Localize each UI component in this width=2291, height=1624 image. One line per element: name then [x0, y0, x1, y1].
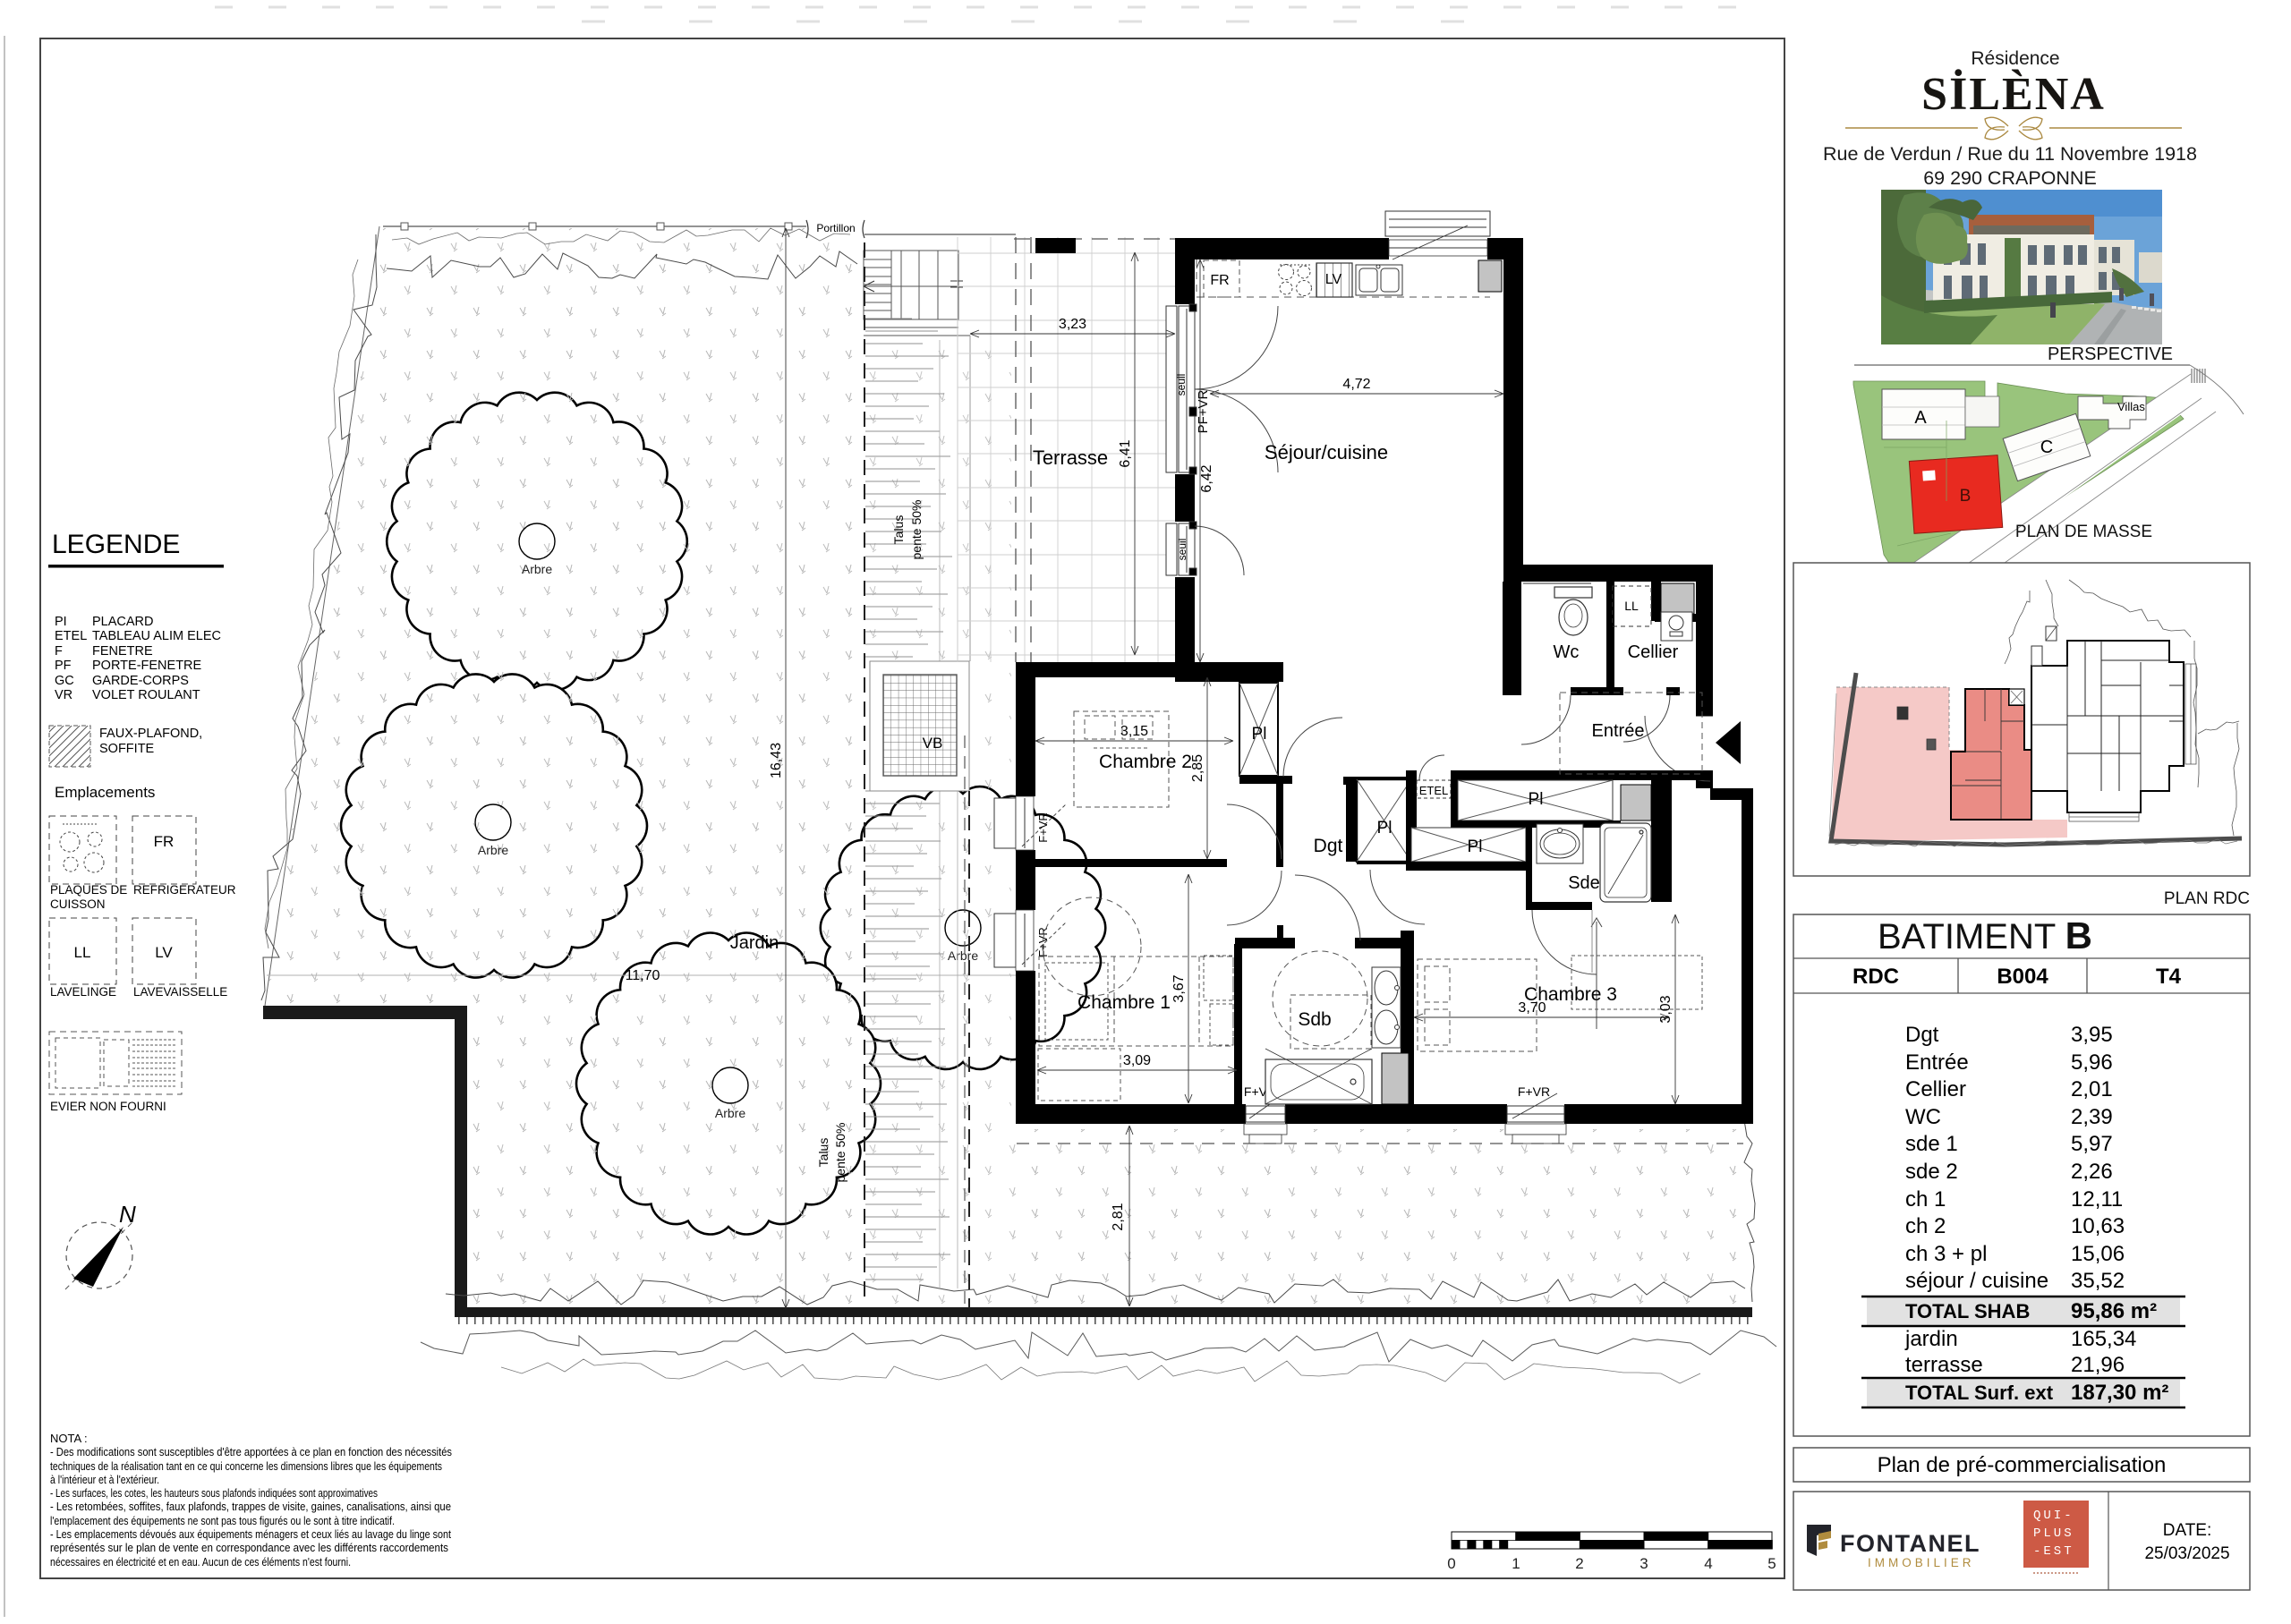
svg-text:3,03: 3,03	[1658, 995, 1674, 1023]
svg-text:3,23: 3,23	[1059, 317, 1086, 332]
svg-text:Chambre 2: Chambre 2	[1099, 752, 1192, 772]
svg-text:2,81: 2,81	[1111, 1203, 1126, 1230]
svg-text:LL: LL	[74, 944, 91, 961]
svg-text:- Les emplacements dévoués aux: - Les emplacements dévoués aux équipemen…	[50, 1527, 451, 1541]
svg-text:FAUX-PLAFOND,: FAUX-PLAFOND,	[99, 727, 202, 741]
svg-text:5,97: 5,97	[2071, 1132, 2113, 1156]
svg-text:Arbre: Arbre	[478, 843, 508, 857]
svg-text:- Des modifications sont susce: - Des modifications sont susceptibles d'…	[50, 1445, 452, 1458]
svg-text:Entrée: Entrée	[1592, 721, 1645, 741]
svg-text:FONTANEL: FONTANEL	[1840, 1530, 1980, 1557]
svg-text:PERSPECTIVE: PERSPECTIVE	[2048, 344, 2173, 364]
svg-text:PLAN DE MASSE: PLAN DE MASSE	[2015, 523, 2152, 541]
svg-text:SİLÈNA: SİLÈNA	[1921, 68, 2106, 120]
svg-text:11,70: 11,70	[626, 968, 660, 983]
svg-text:Pl: Pl	[1252, 725, 1267, 744]
svg-text:3,67: 3,67	[1171, 974, 1187, 1002]
svg-text:TOTAL Surf. ext: TOTAL Surf. ext	[1905, 1382, 2054, 1404]
svg-text:Arbre: Arbre	[948, 948, 978, 963]
svg-text:2,39: 2,39	[2071, 1105, 2113, 1129]
svg-text:Arbre: Arbre	[522, 562, 552, 576]
svg-text:4: 4	[1704, 1555, 1712, 1572]
svg-text:5,96: 5,96	[2071, 1050, 2113, 1075]
svg-text:10,63: 10,63	[2071, 1214, 2125, 1238]
svg-text:nécessaires en électricité et: nécessaires en électricité et en eau. Au…	[50, 1555, 351, 1569]
svg-text:séjour / cuisine: séjour / cuisine	[1905, 1269, 2048, 1293]
svg-text:25/03/2025: 25/03/2025	[2144, 1544, 2229, 1563]
svg-text:Rue de Verdun / Rue du 11 Nove: Rue de Verdun / Rue du 11 Novembre 1918	[1823, 143, 2197, 165]
svg-text:PLUS: PLUS	[2033, 1526, 2074, 1541]
svg-text:Wc: Wc	[1554, 642, 1580, 662]
svg-text:pente 50%: pente 50%	[833, 1123, 847, 1183]
svg-text:seuil: seuil	[1176, 539, 1188, 561]
svg-text:Cellier: Cellier	[1905, 1077, 1966, 1101]
svg-text:Entrée: Entrée	[1905, 1050, 1969, 1075]
svg-text:Sde: Sde	[1568, 873, 1600, 893]
svg-text:PF+VR: PF+VR	[1196, 389, 1211, 433]
svg-text:B: B	[1960, 487, 1972, 506]
svg-text:1: 1	[1512, 1555, 1520, 1572]
svg-text:3: 3	[1639, 1555, 1648, 1572]
svg-text:2,01: 2,01	[2071, 1077, 2113, 1101]
svg-text:Portillon: Portillon	[816, 222, 855, 234]
svg-text:DATE:: DATE:	[2163, 1521, 2212, 1540]
svg-text:15,06: 15,06	[2071, 1242, 2125, 1266]
svg-text:A: A	[1914, 408, 1927, 428]
svg-text:PORTE-FENETRE: PORTE-FENETRE	[92, 659, 202, 673]
svg-text:F+VR: F+VR	[1036, 812, 1050, 843]
svg-text:Talus: Talus	[891, 515, 906, 545]
svg-text:B004: B004	[1997, 965, 2048, 989]
svg-text:Talus: Talus	[816, 1138, 830, 1168]
svg-text:sde 1: sde 1	[1905, 1132, 1958, 1156]
svg-text:l'emplacement des équipements: l'emplacement des équipements ne sont pa…	[50, 1514, 395, 1527]
svg-text:F+VR: F+VR	[1518, 1084, 1550, 1099]
svg-text:6,42: 6,42	[1199, 464, 1214, 492]
svg-text:PLACARD: PLACARD	[92, 615, 154, 629]
svg-text:3,09: 3,09	[1123, 1053, 1151, 1068]
svg-text:sde 2: sde 2	[1905, 1160, 1958, 1184]
svg-text:LV: LV	[1325, 272, 1342, 287]
svg-text:Dgt: Dgt	[1905, 1023, 1939, 1047]
svg-text:FENETRE: FENETRE	[92, 644, 153, 659]
svg-text:- Les surfaces, les cotes, les: - Les surfaces, les cotes, les hauteurs …	[50, 1486, 378, 1500]
svg-text:CUISSON: CUISSON	[50, 897, 106, 911]
svg-text:VB: VB	[923, 735, 943, 752]
svg-text:0: 0	[1447, 1555, 1455, 1572]
svg-text:PLAQUES DE: PLAQUES DE	[50, 883, 127, 897]
svg-text:2,85: 2,85	[1190, 754, 1205, 782]
svg-text:LEGENDE: LEGENDE	[52, 530, 180, 559]
svg-text:PLAN RDC: PLAN RDC	[2164, 889, 2250, 908]
svg-text:pente 50%: pente 50%	[909, 500, 924, 560]
svg-text:Arbre: Arbre	[715, 1106, 745, 1120]
svg-text:FR: FR	[154, 833, 175, 850]
svg-text:TABLEAU ALIM ELEC: TABLEAU ALIM ELEC	[92, 629, 221, 643]
svg-text:REFRIGERATEUR: REFRIGERATEUR	[133, 883, 236, 897]
svg-text:5: 5	[1767, 1555, 1776, 1572]
svg-text:F+VR: F+VR	[1036, 927, 1050, 957]
svg-text:PF: PF	[55, 659, 72, 673]
svg-text:35,52: 35,52	[2071, 1269, 2125, 1293]
svg-text:IMMOBILIER: IMMOBILIER	[1868, 1556, 1975, 1569]
svg-text:NOTA :: NOTA :	[50, 1432, 88, 1445]
svg-text:ETEL: ETEL	[1419, 784, 1449, 797]
svg-text:95,86 m²: 95,86 m²	[2071, 1299, 2157, 1323]
svg-text:Emplacements: Emplacements	[55, 784, 155, 801]
svg-text:seuil: seuil	[1175, 374, 1188, 396]
svg-text:3,95: 3,95	[2071, 1023, 2113, 1047]
svg-text:Jardin: Jardin	[730, 933, 779, 953]
svg-text:3,15: 3,15	[1120, 724, 1148, 739]
svg-text:ch 2: ch 2	[1905, 1214, 1946, 1238]
svg-text:Cellier: Cellier	[1628, 642, 1679, 662]
svg-text:jardin: jardin	[1904, 1327, 1958, 1351]
svg-text:LL: LL	[1624, 599, 1639, 613]
svg-text:6,41: 6,41	[1118, 439, 1133, 467]
svg-text:GC: GC	[55, 674, 74, 688]
svg-text:-EST: -EST	[2033, 1544, 2074, 1559]
svg-text:VOLET ROULANT: VOLET ROULANT	[92, 688, 200, 702]
svg-text:3,70: 3,70	[1518, 1000, 1546, 1016]
svg-text:F: F	[55, 644, 63, 659]
svg-text:165,34: 165,34	[2071, 1327, 2136, 1351]
svg-text:ch 3 + pl: ch 3 + pl	[1905, 1242, 1987, 1266]
svg-text:EVIER NON FOURNI: EVIER NON FOURNI	[50, 1100, 166, 1113]
svg-text:ETEL: ETEL	[55, 629, 87, 643]
svg-text:SOFFITE: SOFFITE	[99, 742, 155, 756]
svg-text:Dgt: Dgt	[1314, 836, 1343, 856]
svg-text:représentés sur le plan de ven: représentés sur le plan de vente en corr…	[50, 1541, 448, 1554]
svg-text:187,30 m²: 187,30 m²	[2071, 1381, 2168, 1405]
svg-text:Chambre 1: Chambre 1	[1077, 992, 1171, 1013]
svg-text:- Les retombées, soffites, fau: - Les retombées, soffites, faux plafonds…	[50, 1500, 451, 1513]
svg-text:Villas: Villas	[2117, 400, 2145, 413]
svg-text:Sdb: Sdb	[1298, 1009, 1331, 1030]
svg-text:LV: LV	[155, 944, 173, 961]
svg-text:QUI-: QUI-	[2033, 1509, 2074, 1523]
svg-text:Pl: Pl	[1377, 819, 1392, 838]
svg-text:WC: WC	[1905, 1105, 1941, 1129]
svg-text:VR: VR	[55, 688, 72, 702]
svg-text:techniques de la réalisation t: techniques de la réalisation tant en ce …	[50, 1459, 442, 1473]
svg-text:LAVELINGE: LAVELINGE	[50, 985, 116, 999]
svg-text:BATIMENT B: BATIMENT B	[1878, 914, 2092, 957]
svg-text:12,11: 12,11	[2071, 1187, 2123, 1212]
svg-text:21,96: 21,96	[2071, 1353, 2125, 1377]
svg-text:terrasse: terrasse	[1905, 1353, 1983, 1377]
svg-text:Pl: Pl	[1529, 790, 1544, 809]
svg-text:FR: FR	[1210, 273, 1229, 288]
svg-text:Résidence: Résidence	[1971, 48, 2059, 69]
svg-text:69 290 CRAPONNE: 69 290 CRAPONNE	[1923, 167, 2097, 189]
svg-text:ch 1: ch 1	[1905, 1187, 1946, 1212]
svg-text:Pl: Pl	[1468, 838, 1483, 856]
svg-text:C: C	[2040, 438, 2053, 457]
svg-text:Séjour/cuisine: Séjour/cuisine	[1265, 441, 1388, 463]
svg-text:LAVEVAISSELLE: LAVEVAISSELLE	[133, 985, 227, 999]
svg-text:à l'intérieur et à l'extérieur: à l'intérieur et à l'extérieur.	[50, 1473, 159, 1486]
svg-text:TOTAL SHAB: TOTAL SHAB	[1905, 1300, 2030, 1322]
svg-text:16,43: 16,43	[769, 743, 784, 778]
svg-text:N: N	[119, 1201, 136, 1228]
svg-text:Terrasse: Terrasse	[1033, 446, 1108, 469]
svg-text:2: 2	[1575, 1555, 1583, 1572]
svg-text:2,26: 2,26	[2071, 1160, 2113, 1184]
svg-text:GARDE-CORPS: GARDE-CORPS	[92, 674, 189, 688]
svg-text:4,72: 4,72	[1342, 377, 1370, 392]
svg-text:RDC: RDC	[1852, 965, 1899, 989]
svg-text:T4: T4	[2156, 965, 2182, 989]
svg-text:PI: PI	[55, 615, 67, 629]
svg-text:Plan de pré-commercialisation: Plan de pré-commercialisation	[1878, 1453, 2167, 1477]
